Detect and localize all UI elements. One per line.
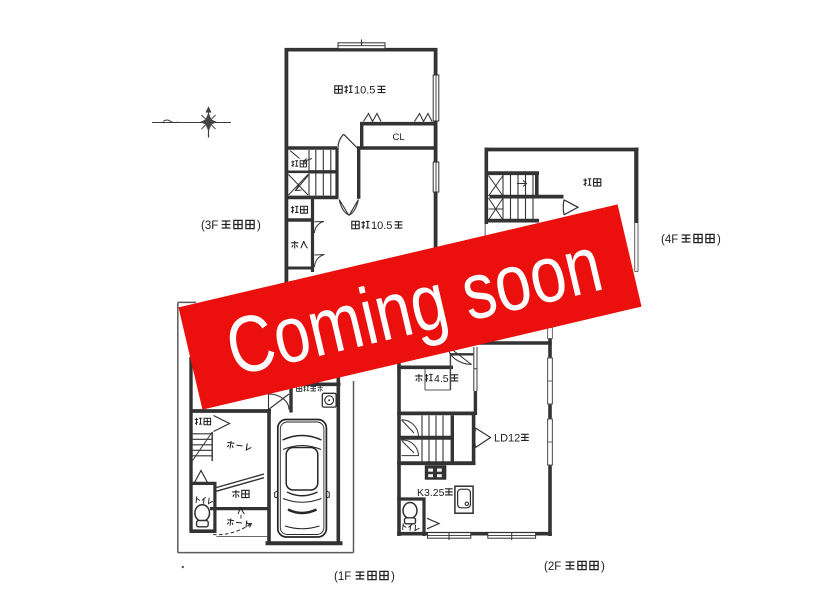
svg-text:K3.25: K3.25 [417, 487, 445, 499]
svg-text:(3F: (3F [201, 220, 218, 232]
svg-text:): ) [717, 234, 721, 246]
svg-text:4.5: 4.5 [434, 373, 449, 385]
svg-text:10.5: 10.5 [371, 220, 392, 232]
svg-text:(4F: (4F [661, 234, 678, 246]
svg-text:(2F: (2F [544, 561, 561, 573]
svg-text:CL: CL [393, 132, 405, 143]
svg-text:LD12: LD12 [494, 433, 520, 445]
svg-text:(1F: (1F [334, 571, 351, 583]
svg-text:): ) [257, 220, 261, 232]
svg-text:10.5: 10.5 [354, 85, 375, 97]
svg-text:): ) [601, 561, 605, 573]
svg-text:): ) [391, 571, 395, 583]
